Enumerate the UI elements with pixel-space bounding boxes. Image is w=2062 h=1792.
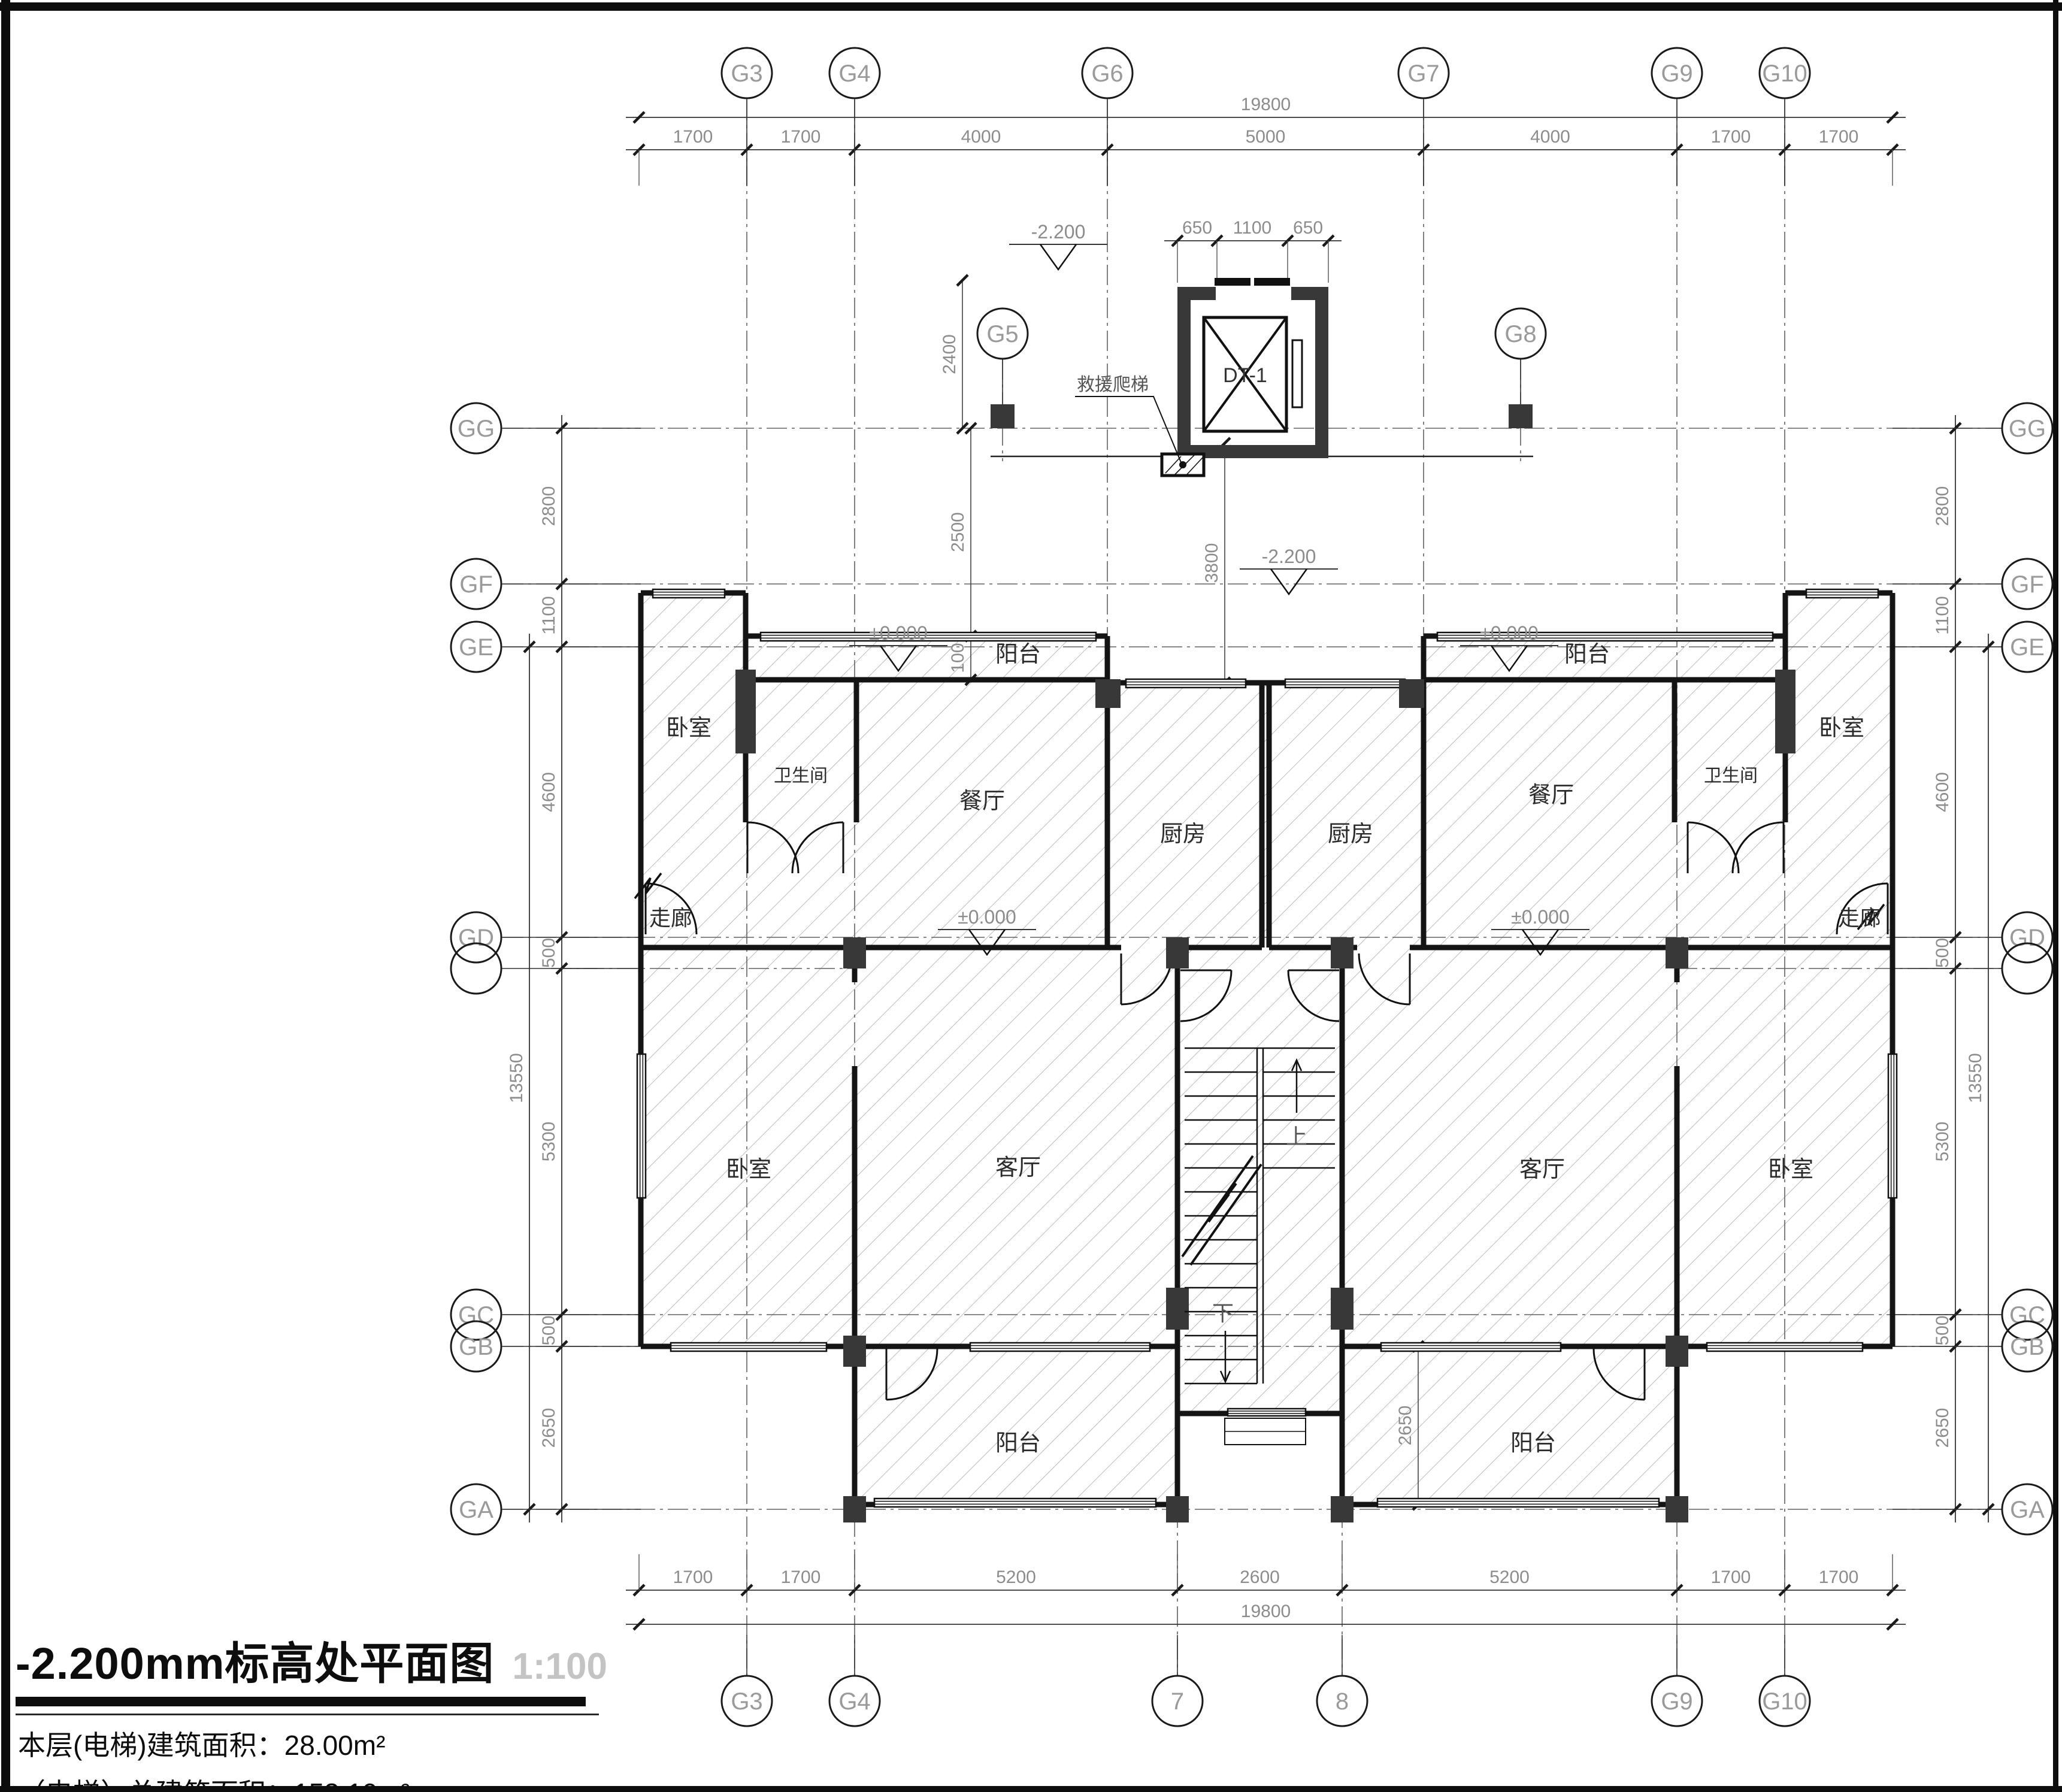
elevation-marker-label: ±0.000: [1511, 906, 1570, 928]
elevation-marker-label: -2.200: [1262, 546, 1316, 567]
dim-text: 500: [1933, 938, 1952, 968]
grid-bubble-label: G4: [838, 60, 870, 87]
dim-text: 2650: [1933, 1408, 1952, 1448]
rescue-leader-dot: [1179, 461, 1186, 468]
room-label: 卫生间: [1704, 766, 1758, 786]
room-label: 餐厅: [1528, 783, 1574, 808]
dim-text: 5300: [1933, 1122, 1952, 1162]
grid-bubble-label: G9: [1661, 60, 1692, 87]
dim-text: 4000: [1530, 127, 1570, 147]
window: [1285, 679, 1405, 688]
grid-bubble-label: G3: [731, 60, 762, 87]
elevation-marker-label: ±0.000: [958, 906, 1016, 928]
window: [1377, 1499, 1659, 1507]
room-label: 客厅: [1519, 1157, 1565, 1182]
dim-text: 1700: [1819, 1567, 1859, 1587]
note-total-area: （电梯）总建筑面积：153.19m²: [18, 1772, 818, 1792]
dim-text: 100: [948, 643, 968, 673]
column: [1775, 670, 1795, 753]
title-underline-thin: [16, 1714, 599, 1715]
frame-left: [1, 0, 10, 1792]
window: [1381, 1343, 1561, 1351]
grid-bubble-label: GA: [2010, 1497, 2045, 1523]
column: [735, 670, 756, 753]
frame-top: [0, 2, 2062, 11]
window: [761, 632, 1096, 641]
room-label: 阳台: [995, 1431, 1041, 1456]
dim-text: 500: [539, 1315, 559, 1345]
grid-bubble-label: GF: [2010, 571, 2044, 598]
dim-text: 500: [1933, 1315, 1952, 1345]
elevator-label: DT-1: [1223, 364, 1267, 387]
dim-text: 5200: [996, 1567, 1036, 1587]
dim-text: 500: [539, 938, 559, 968]
column: [843, 937, 866, 968]
floor-hatch-balcony-left: [855, 1346, 1177, 1505]
dim-text: 1100: [1233, 218, 1272, 238]
column: [1399, 679, 1424, 708]
elevation-marker-label: ±0.000: [869, 622, 928, 644]
column: [843, 1336, 866, 1367]
room-label: 厨房: [1160, 822, 1206, 847]
column: [1166, 1496, 1189, 1522]
room-label: 客厅: [995, 1155, 1041, 1180]
elevation-marker-label: -2.200: [1031, 221, 1086, 243]
drawing-sheet: 1980019800170017004000500040001700170017…: [0, 0, 2062, 1792]
drawing-scale: 1:100: [512, 1646, 607, 1687]
grid-bubble-label: 8: [1336, 1688, 1349, 1715]
room-label: 餐厅: [959, 789, 1005, 814]
elevator-door-opening: [1216, 287, 1291, 301]
grid-bubble-label: G8: [1504, 321, 1536, 347]
dim-text: 13550: [1966, 1053, 1985, 1103]
dim-text: 650: [1293, 218, 1323, 238]
dim-text: 1700: [673, 1567, 713, 1587]
elevation-marker-label: ±0.000: [1480, 622, 1539, 644]
dim-text: 4600: [1933, 772, 1952, 812]
room-label: 走廊: [1838, 906, 1881, 930]
window: [970, 1343, 1150, 1351]
elevator-door-leaf: [1254, 278, 1290, 286]
rescue-ladder-label: 救援爬梯: [1077, 375, 1149, 395]
window: [637, 1054, 646, 1198]
grid-bubble-label: G10: [1762, 1688, 1807, 1715]
room-label: 阳台: [1564, 642, 1610, 667]
dim-text: 2650: [1395, 1406, 1415, 1446]
column: [1166, 1288, 1189, 1330]
dim-text: 5300: [539, 1122, 559, 1162]
floor-hatch-balcony-right: [1342, 1346, 1677, 1505]
column: [1331, 1288, 1354, 1330]
dim-text: 1700: [1819, 127, 1859, 147]
room-label: 厨房: [1328, 822, 1373, 847]
column: [1331, 937, 1354, 968]
grid-bubble-label: G4: [838, 1688, 870, 1715]
grid-bubble-label: GG: [458, 416, 495, 442]
stair-down-label: 下: [1212, 1301, 1234, 1325]
elevation-marker-triangle: [1271, 569, 1307, 594]
column: [1666, 1496, 1688, 1522]
grid-bubble-label: GB: [2010, 1334, 2045, 1360]
elevator-counterweight: [1292, 340, 1302, 407]
room-label: 卧室: [666, 716, 711, 741]
column: [1095, 679, 1121, 708]
dim-text: 2800: [1933, 486, 1952, 526]
dim-text: 5200: [1489, 1567, 1530, 1587]
dim-text: 4600: [539, 772, 559, 812]
column: [991, 404, 1015, 428]
grid-bubble-label: G10: [1762, 60, 1807, 87]
grid-bubble-label: G5: [986, 321, 1018, 347]
dim-text: 1100: [1933, 596, 1952, 635]
window: [653, 589, 725, 598]
elevation-marker-triangle: [1040, 244, 1076, 270]
window: [671, 1343, 826, 1351]
room-label: 卫生间: [774, 766, 828, 786]
room-label: 走廊: [649, 906, 692, 930]
room-label: 卧室: [1819, 716, 1864, 741]
grid-bubble-label: GE: [459, 634, 493, 661]
grid-bubble-label: 7: [1171, 1688, 1184, 1715]
grid-bubble-label: G6: [1091, 60, 1123, 87]
grid-bubble-label: GG: [2009, 416, 2046, 442]
dim-text: 650: [1182, 218, 1212, 238]
grid-bubble-label: G9: [1661, 1688, 1692, 1715]
room-label: 阳台: [995, 642, 1041, 667]
grid-bubble-label: G7: [1407, 60, 1439, 87]
frame-right: [2053, 0, 2058, 1792]
column: [1666, 1336, 1688, 1367]
column: [1509, 404, 1533, 428]
dim-text: 2400: [940, 334, 959, 374]
dim-text: 1700: [781, 1567, 821, 1587]
note-floor-area: 本层(电梯)建筑面积：28.00m²: [18, 1724, 818, 1763]
drawing-title: -2.200mm标高处平面图: [16, 1639, 494, 1688]
column: [843, 1496, 866, 1522]
window: [1806, 589, 1878, 598]
title-block: -2.200mm标高处平面图1:100 本层(电梯)建筑面积：28.00m² （…: [16, 1628, 818, 1792]
window: [1707, 1343, 1863, 1351]
dim-text: 2800: [539, 486, 559, 526]
room-label: 阳台: [1510, 1431, 1556, 1456]
dim-text: 1700: [1711, 127, 1751, 147]
column: [1666, 937, 1688, 968]
grid-bubble-label: GB: [459, 1334, 493, 1360]
column: [1166, 937, 1189, 968]
dim-text: 3800: [1202, 543, 1222, 583]
dim-text: 4000: [961, 127, 1001, 147]
window: [874, 1499, 1156, 1507]
window: [1888, 1054, 1897, 1198]
window: [1228, 1409, 1306, 1416]
dim-text: 2500: [948, 512, 968, 552]
dim-text: 19800: [1241, 1602, 1291, 1621]
grid-bubble-label: GE: [2010, 634, 2045, 661]
dim-text: 13550: [507, 1053, 526, 1103]
stair-up-label: 上: [1286, 1124, 1307, 1149]
dim-text: 1700: [1711, 1567, 1751, 1587]
dim-text: 19800: [1241, 95, 1291, 114]
dim-text: 1700: [781, 127, 821, 147]
room-label: 卧室: [1768, 1157, 1813, 1182]
column: [1331, 1496, 1354, 1522]
dim-text: 1100: [539, 596, 559, 635]
dim-text: 5000: [1246, 127, 1286, 147]
dim-text: 1700: [673, 127, 713, 147]
dim-text: 2650: [539, 1408, 559, 1448]
dim-text: 2600: [1240, 1567, 1280, 1587]
grid-bubble-label: GF: [459, 571, 493, 598]
title-underline-bar: [16, 1697, 586, 1706]
window: [1126, 679, 1246, 688]
floor-plan-canvas: 1980019800170017004000500040001700170017…: [0, 0, 2062, 1792]
grid-bubble-label: GA: [459, 1497, 493, 1523]
elevator-door-leaf: [1215, 278, 1250, 286]
room-label: 卧室: [726, 1157, 771, 1182]
